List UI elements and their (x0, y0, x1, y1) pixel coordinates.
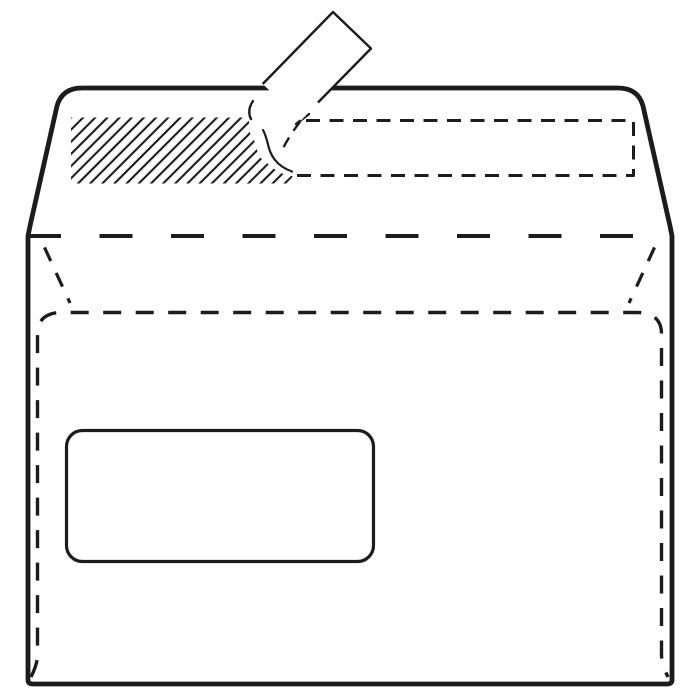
envelope-illustration-canvas (0, 0, 700, 700)
address-window (67, 431, 374, 562)
envelope-diagram (0, 0, 700, 700)
envelope-line-art (28, 12, 672, 684)
